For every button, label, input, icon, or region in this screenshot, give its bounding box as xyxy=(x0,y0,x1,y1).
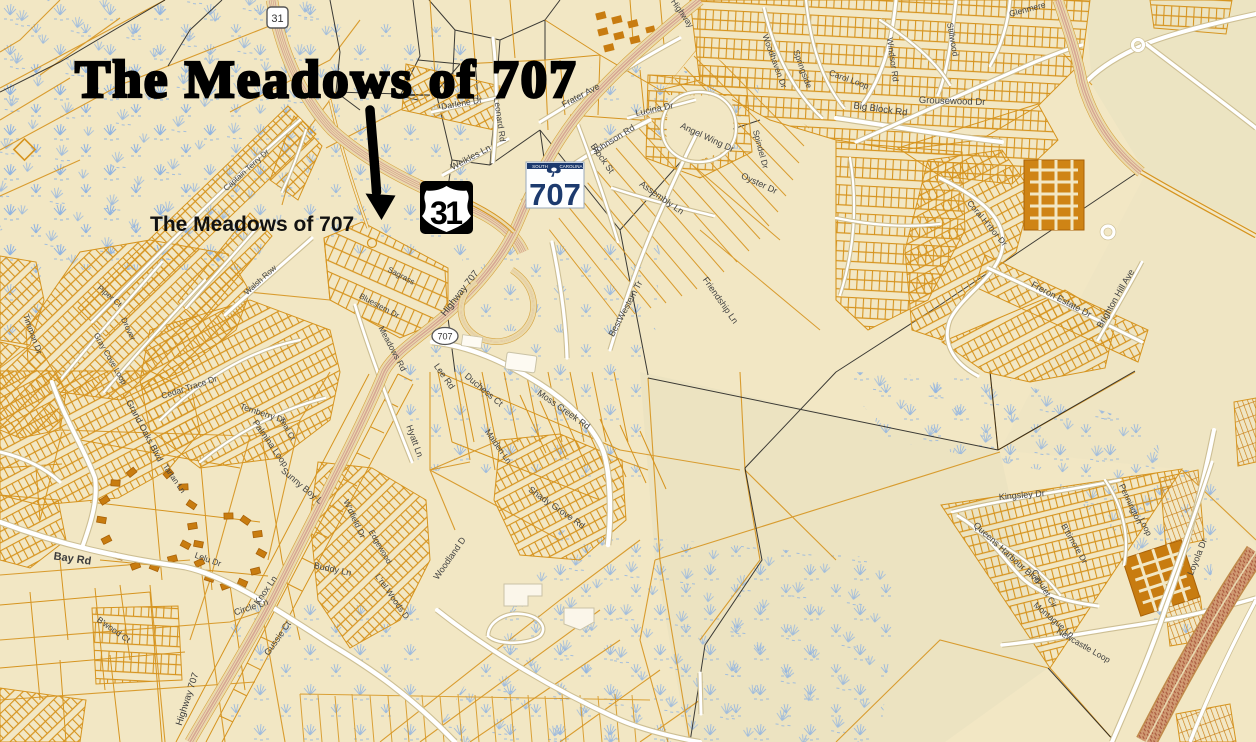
svg-text:31: 31 xyxy=(430,195,463,231)
svg-text:The Meadows of 707: The Meadows of 707 xyxy=(75,51,578,109)
svg-text:707: 707 xyxy=(529,177,581,212)
svg-text:707: 707 xyxy=(437,332,452,342)
svg-text:31: 31 xyxy=(271,13,283,25)
svg-text:SOUTH: SOUTH xyxy=(532,164,548,169)
svg-text:Grousewood Dr: Grousewood Dr xyxy=(919,95,986,108)
svg-text:The Meadows of 707: The Meadows of 707 xyxy=(150,213,354,236)
svg-text:CAROLINA: CAROLINA xyxy=(559,164,582,169)
